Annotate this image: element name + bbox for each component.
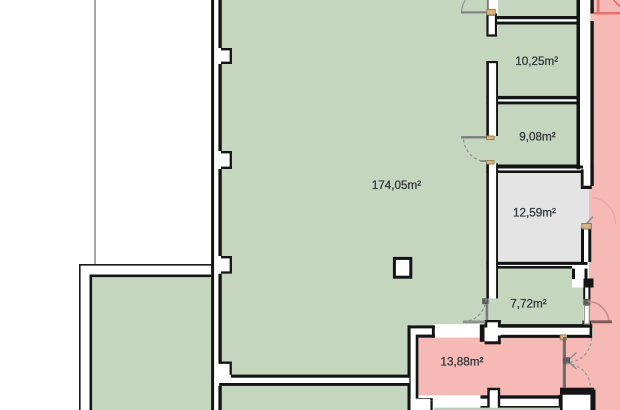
svg-text:13,88m²: 13,88m² bbox=[441, 355, 484, 368]
svg-text:12,59m²: 12,59m² bbox=[513, 207, 556, 220]
svg-text:9,08m²: 9,08m² bbox=[519, 130, 555, 143]
svg-text:174,05m²: 174,05m² bbox=[372, 179, 421, 192]
svg-text:7,72m²: 7,72m² bbox=[510, 297, 546, 310]
svg-text:10,25m²: 10,25m² bbox=[515, 55, 558, 68]
